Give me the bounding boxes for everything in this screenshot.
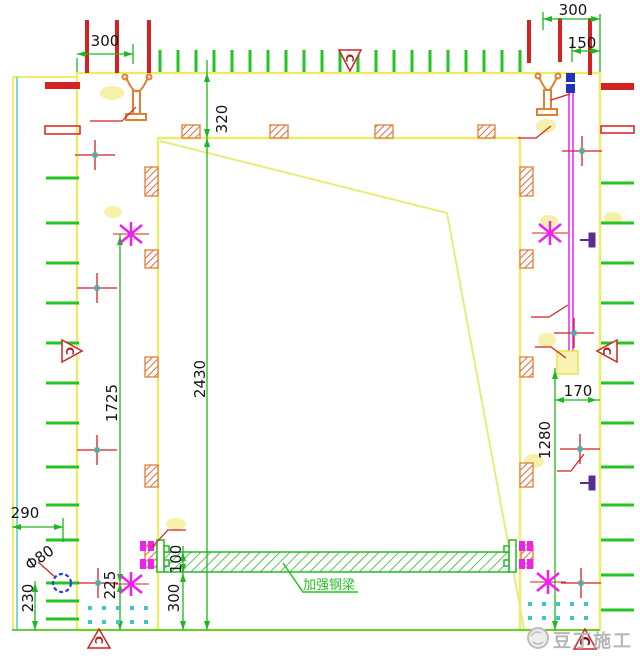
- dim-1725: 1725: [103, 381, 119, 425]
- hatched-blocks: [145, 125, 533, 567]
- section-letter-top: C: [344, 51, 356, 65]
- highlight-blobs: [100, 86, 622, 530]
- top-ticks: [87, 18, 590, 75]
- dim-top-left-300: 300: [83, 32, 127, 48]
- formwork-elevation-drawing: 300 300 150 320 2430 1725 225 290 230 Φ8…: [0, 0, 640, 665]
- dimension-lines: [12, 12, 600, 630]
- dim-1280: 1280: [536, 418, 552, 462]
- dim-170: 170: [556, 382, 600, 398]
- dimension-arrows: [12, 16, 600, 630]
- section-letter-right: C: [601, 344, 613, 358]
- watermark-logo: [528, 628, 548, 648]
- concrete-dots: [88, 602, 588, 624]
- dim-290: 290: [3, 504, 47, 520]
- clamp-symbol-right: [536, 74, 561, 116]
- dim-top-right-300: 300: [551, 1, 595, 17]
- beam-annotation: 加强钢梁: [303, 574, 355, 593]
- dim-320: 320: [213, 97, 229, 141]
- dim-2430: 2430: [191, 357, 207, 401]
- section-letter-left: C: [64, 344, 76, 358]
- watermark-text: 豆丁施工: [553, 627, 633, 653]
- dim-225: 225: [101, 563, 117, 607]
- dim-300-bottom: 300: [165, 576, 181, 620]
- drawing-linework: [0, 0, 640, 665]
- section-letter-bottom-left: C: [93, 633, 105, 647]
- dim-100: 100: [167, 537, 183, 581]
- steel-beam: [140, 540, 533, 572]
- clamp-symbol-left: [123, 75, 152, 121]
- dim-top-right-150: 150: [560, 34, 604, 50]
- dim-230: 230: [19, 576, 35, 620]
